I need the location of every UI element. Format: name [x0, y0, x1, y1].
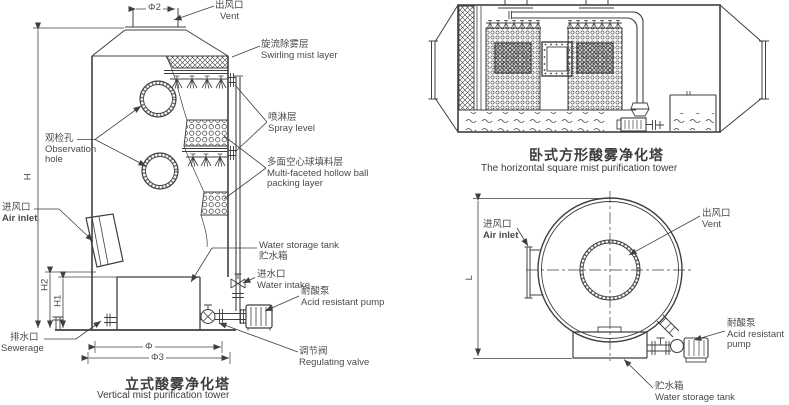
- packing-layer-label: 多面空心球填料层 Multi-faceted hollow ball packi…: [267, 158, 368, 190]
- packing-sections: [486, 28, 622, 110]
- air-inlet-label-end: 进风口 Air inlet: [483, 220, 518, 241]
- packing-layer-2: [201, 192, 228, 215]
- packing-label-en2: packing layer: [267, 179, 368, 190]
- spray-label-en: Spray level: [268, 124, 315, 135]
- water-tank-label-end: 贮水箱 Water storage tank: [655, 382, 735, 403]
- vent-label-end: 出风口 Vent: [702, 209, 731, 230]
- sewerage-label: 排水口 Sewerage: [1, 333, 44, 354]
- vertical-tower-leaders: [34, 6, 299, 352]
- horizontal-tower-drawing: [429, 0, 770, 132]
- air-inlet-label-left: 进风口 Air inlet: [2, 203, 37, 224]
- dim-h: H: [24, 173, 34, 180]
- vent-label-left: 出风口 Vent: [215, 1, 244, 22]
- end-air-inlet-en: Air inlet: [483, 231, 518, 242]
- end-pump-en2: pump: [727, 340, 784, 351]
- observation-label-en2: hole: [45, 155, 96, 166]
- circulation-pipe-assembly: [53, 73, 273, 331]
- horizontal-tower-pump: [617, 118, 664, 131]
- end-tank-en: Water storage tank: [655, 393, 735, 404]
- dim-phi3: Φ3: [149, 353, 166, 363]
- observation-holes: [140, 81, 178, 189]
- dim-h1: H1: [53, 295, 63, 307]
- horizontal-tower-title-zh: 卧式方形酸雾净化塔: [529, 145, 664, 165]
- packing-layer-1: [184, 120, 228, 146]
- water-intake-valve: [231, 274, 245, 288]
- acid-pump-label-left: 耐酸泵 Acid resistant pump: [301, 287, 384, 308]
- vertical-tower-title-en: Vertical mist purification tower: [97, 390, 229, 401]
- dim-phi: Φ: [143, 342, 155, 352]
- end-vent-en: Vent: [702, 220, 731, 231]
- vent-label-en: Vent: [220, 12, 244, 23]
- acid-pump-left: [240, 305, 272, 331]
- swirl-label-en: Swirling mist layer: [261, 51, 338, 62]
- horizontal-tower-title-en: The horizontal square mist purification …: [481, 163, 677, 174]
- sewerage-stub: [53, 317, 64, 329]
- dim-l: L: [465, 275, 475, 280]
- inlet-distributor: [459, 6, 474, 110]
- spray-level-label: 喷淋层 Spray level: [268, 113, 315, 134]
- technical-diagram: Φ2 出风口 Vent 旋流除雾层 Swirling mist layer 喷淋…: [0, 0, 789, 405]
- sewerage-label-en: Sewerage: [1, 344, 44, 355]
- vertical-tower-drawing: [33, 6, 299, 364]
- water-tank-label-zh: 贮水箱: [259, 252, 339, 263]
- swirling-mist-layer: [166, 56, 228, 68]
- regulating-valve: [201, 305, 215, 324]
- dim-phi2: Φ2: [146, 3, 163, 13]
- top-hatches: [498, 0, 614, 8]
- observation-hole-label: 观检孔 Observation hole: [45, 134, 96, 166]
- inlet-flange: [429, 41, 439, 99]
- regulating-valve-label-en: Regulating valve: [299, 358, 369, 369]
- air-inlet-label-en: Air inlet: [2, 214, 37, 225]
- dim-h2: H2: [40, 279, 50, 291]
- regulating-valve-label: 调节阀 Regulating valve: [299, 347, 369, 368]
- tank-saddle: [598, 327, 621, 332]
- outlet-flange: [759, 41, 769, 99]
- swirl-layer-label: 旋流除雾层 Swirling mist layer: [261, 40, 338, 61]
- acid-pump-label-end: 耐酸泵 Acid resistant pump: [727, 319, 784, 351]
- water-tank-label-left: Water storage tank 贮水箱: [259, 241, 339, 262]
- vertical-tower-internals: [164, 56, 228, 247]
- acid-pump-label-en: Acid resistant pump: [301, 298, 384, 309]
- tank-drain-stub: [104, 314, 117, 327]
- diagram-linework: [0, 0, 789, 405]
